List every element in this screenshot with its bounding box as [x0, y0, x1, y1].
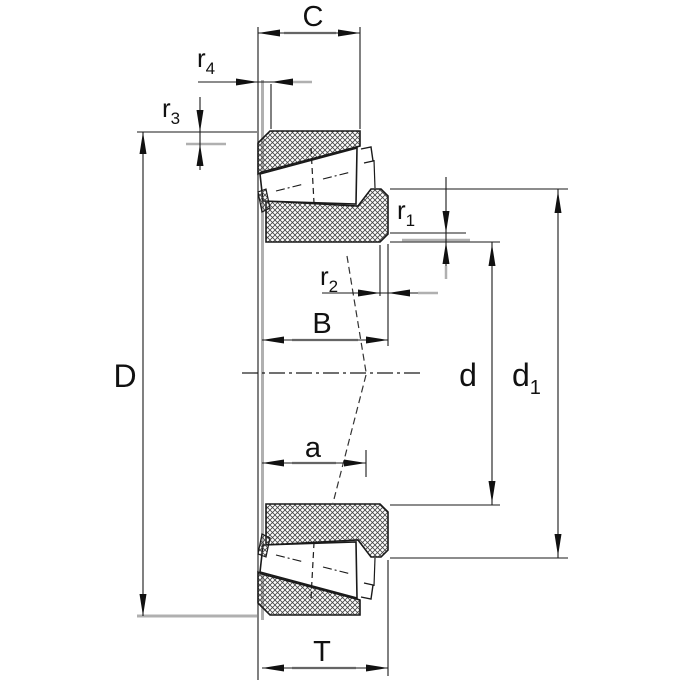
dim-label-t: T: [313, 636, 331, 668]
dim-label-a: a: [305, 432, 322, 464]
bearing-dimension-drawing: C r4 r3 D r1 r2 B a d d1 T: [0, 0, 680, 680]
dim-label-d-bore: d: [459, 357, 477, 393]
dim-label-c: C: [303, 1, 324, 33]
dim-label-b: B: [312, 308, 331, 340]
drawing-canvas: C r4 r3 D r1 r2 B a d d1 T: [0, 0, 680, 680]
dim-label-d-outer: D: [113, 358, 136, 394]
